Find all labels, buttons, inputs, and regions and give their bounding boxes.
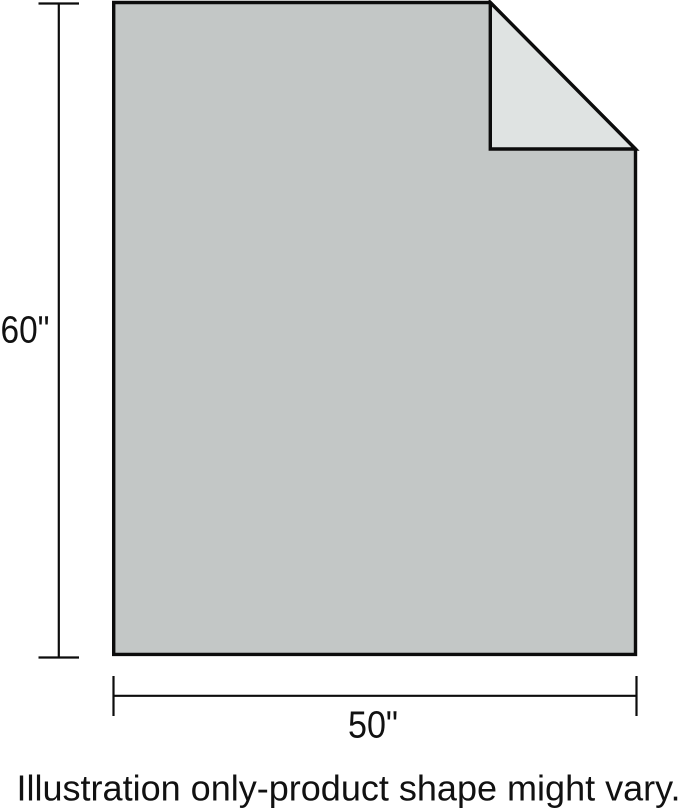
svg-text:Illustration only-product shap: Illustration only-product shape might va… <box>17 768 679 809</box>
svg-text:60": 60" <box>1 310 50 352</box>
svg-text:50": 50" <box>348 705 398 747</box>
